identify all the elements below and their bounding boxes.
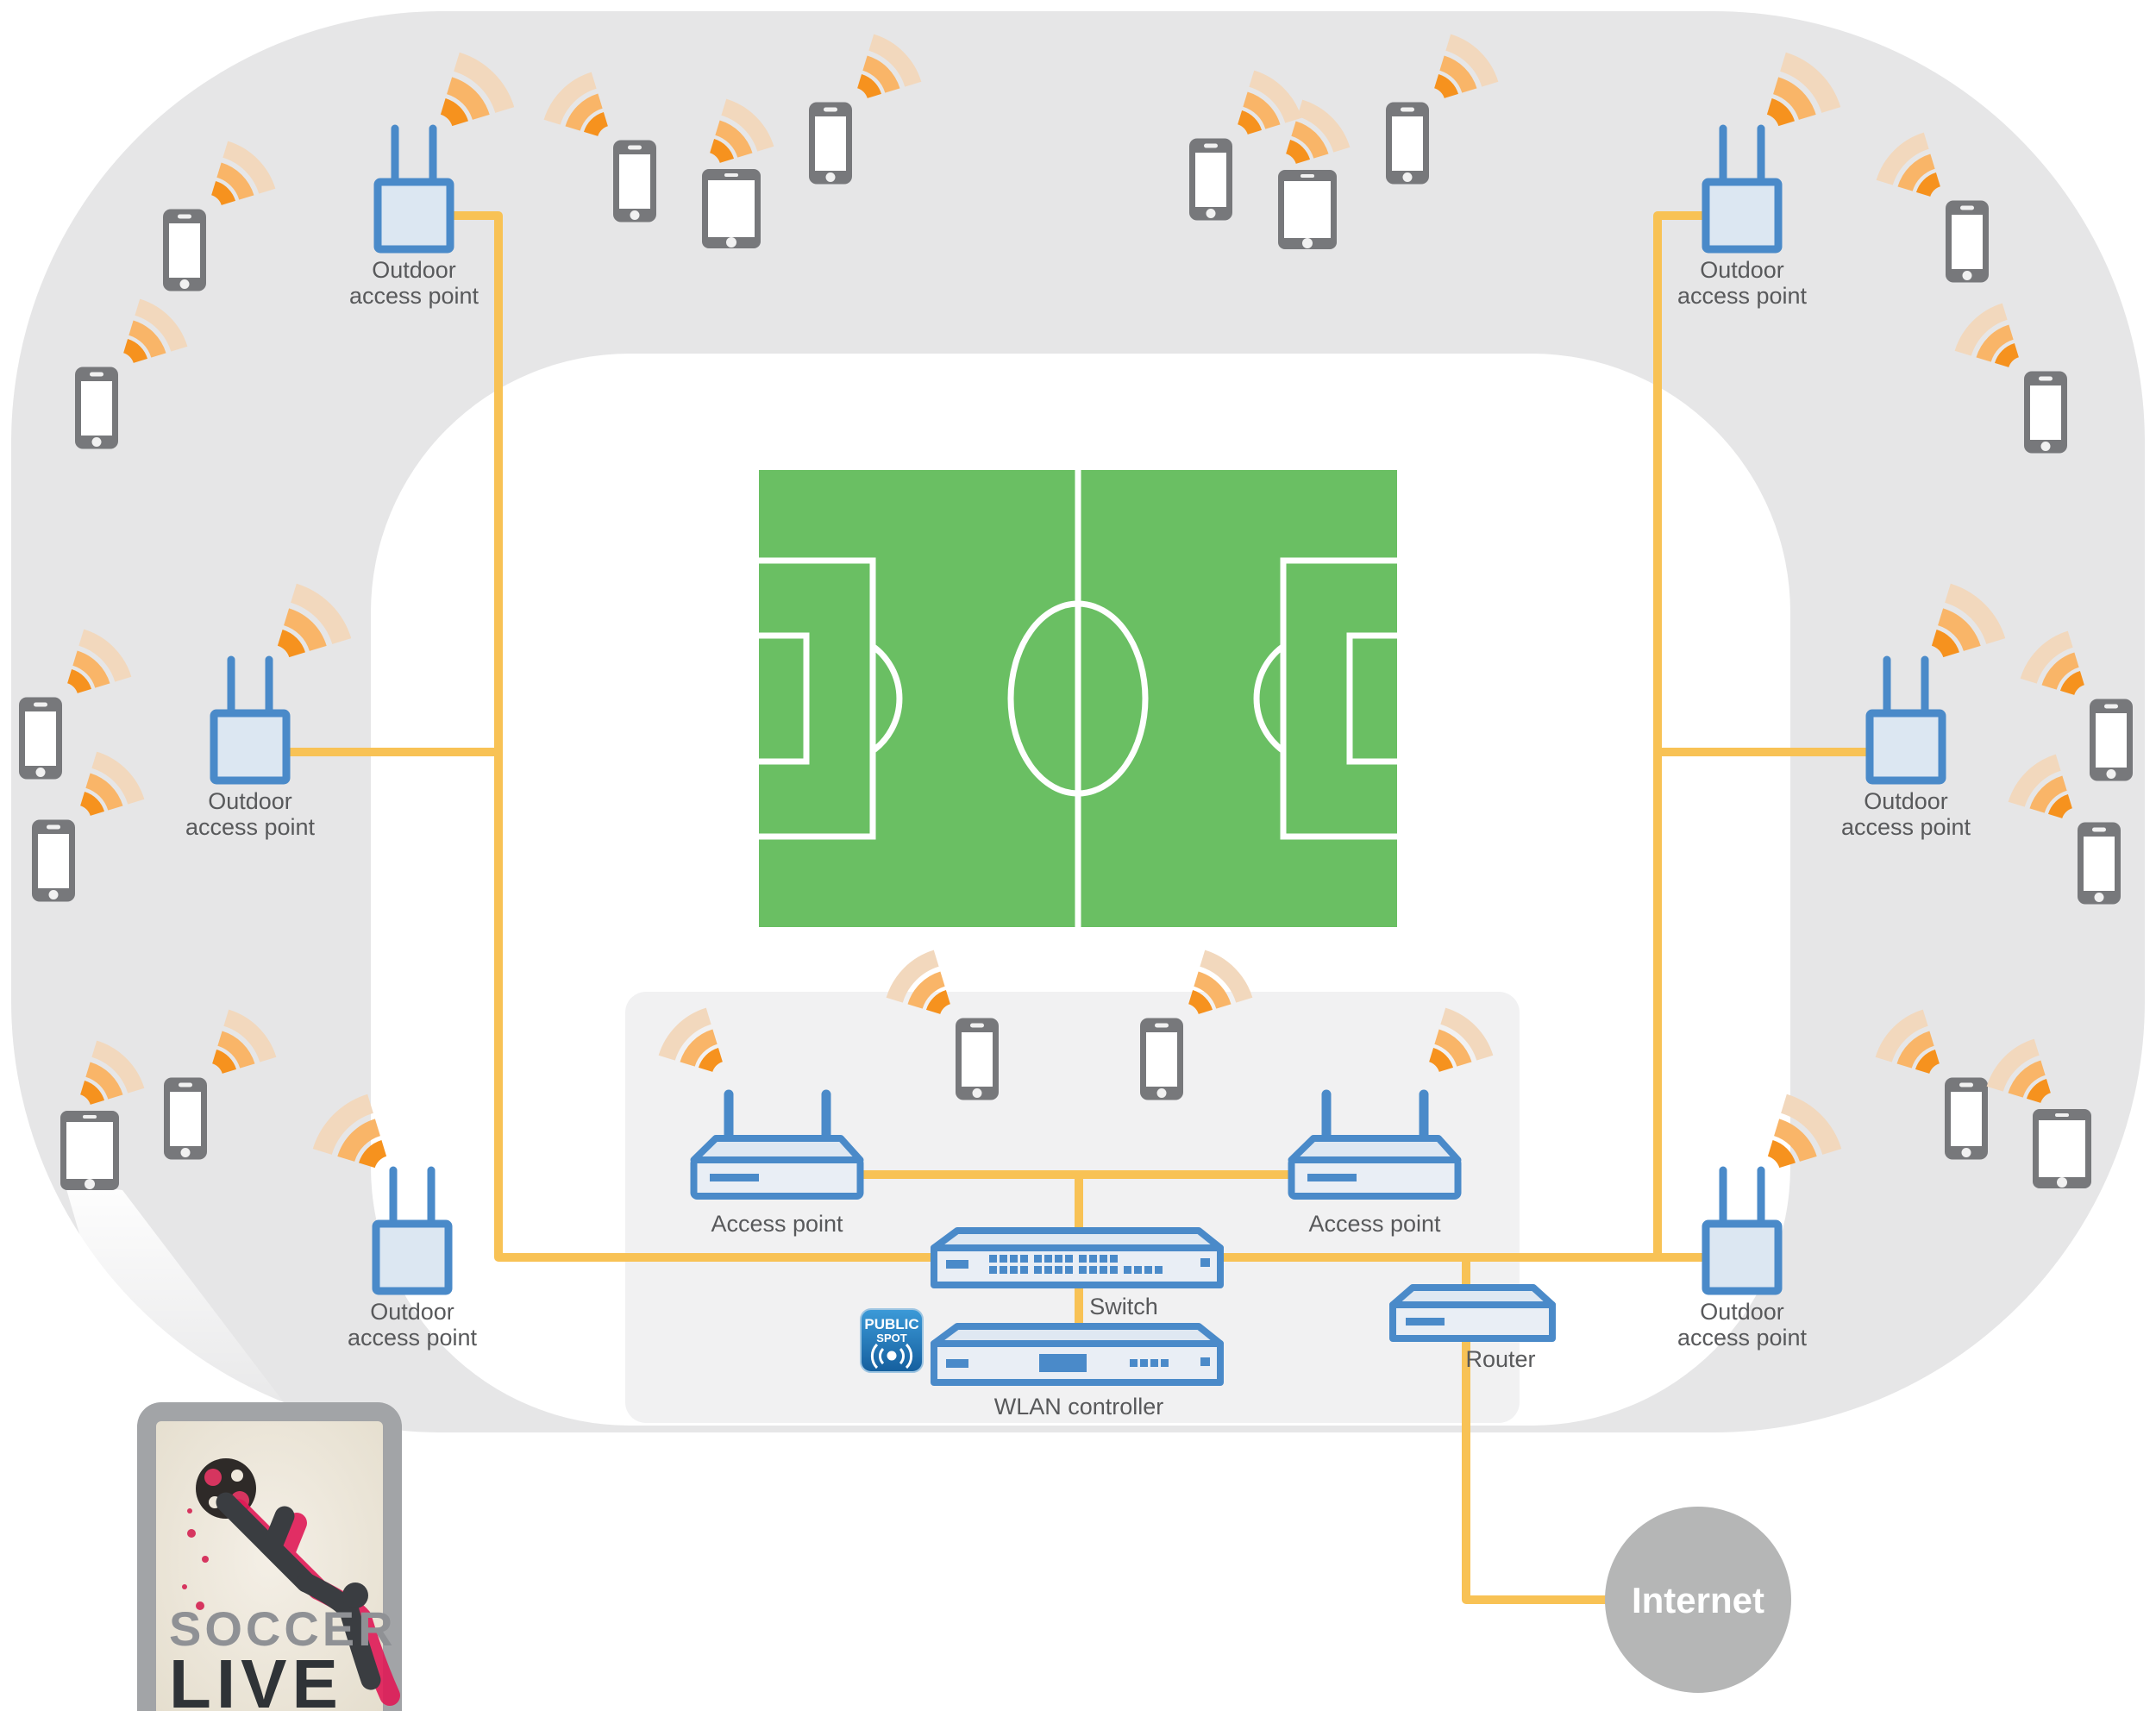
- router-device: [1393, 1288, 1552, 1338]
- outdoor-ap-label: access point: [1677, 1325, 1808, 1351]
- poster-title-live: LIVE: [169, 1645, 343, 1711]
- access-point-right-label: Access point: [1308, 1211, 1441, 1237]
- phone-icon: [163, 210, 206, 291]
- soccer-field: [759, 470, 1397, 927]
- phone-icon: [75, 367, 118, 449]
- access-point-left-label: Access point: [711, 1211, 843, 1237]
- outdoor-ap-label: Outdoor: [1700, 1299, 1784, 1325]
- stadium-wifi-diagram: Switch WLAN controller PUBLIC SPOT Route…: [0, 0, 2156, 1711]
- phone-icon: [956, 1018, 999, 1100]
- phone-icon: [2024, 372, 2067, 454]
- outdoor-ap-label: Outdoor: [372, 257, 456, 283]
- public-spot-line1: PUBLIC: [864, 1316, 918, 1332]
- phone-icon: [809, 103, 852, 185]
- phone-icon: [1386, 103, 1429, 185]
- outdoor-ap-label: access point: [349, 283, 479, 309]
- phone-icon: [1140, 1018, 1183, 1100]
- outdoor-ap-label: Outdoor: [208, 788, 292, 814]
- outdoor-ap-label: access point: [1841, 814, 1971, 840]
- phone-icon: [32, 820, 75, 902]
- phone-icon: [2078, 823, 2121, 905]
- outdoor-ap-label: access point: [348, 1325, 478, 1351]
- phone-icon: [2090, 699, 2133, 781]
- wlan-controller-label: WLAN controller: [994, 1394, 1164, 1420]
- internet-label: Internet: [1632, 1580, 1764, 1620]
- phone-icon: [164, 1078, 207, 1160]
- phone-icon: [1946, 201, 1989, 283]
- public-spot-line2: SPOT: [876, 1332, 906, 1344]
- phone-icon: [1189, 139, 1232, 221]
- outdoor-ap-label: access point: [1677, 283, 1808, 309]
- tablet-icon: [702, 169, 761, 248]
- tablet-icon: [60, 1111, 119, 1190]
- phone-icon: [19, 698, 62, 780]
- internet-node: Internet: [1605, 1507, 1791, 1693]
- outdoor-ap-label: Outdoor: [1864, 788, 1948, 814]
- outdoor-ap-label: Outdoor: [370, 1299, 454, 1325]
- tablet-icon: [1278, 170, 1337, 249]
- tablet-icon: [2033, 1109, 2091, 1188]
- phone-icon: [613, 141, 656, 222]
- outdoor-ap-label: access point: [185, 814, 316, 840]
- outdoor-ap-label: Outdoor: [1700, 257, 1784, 283]
- soccer-live-poster: SOCCER LIVE: [137, 1402, 402, 1711]
- public-spot-badge: PUBLIC SPOT: [861, 1309, 923, 1372]
- switch-label: Switch: [1089, 1294, 1158, 1319]
- wlan-controller-device: [934, 1326, 1220, 1382]
- switch-device: [934, 1231, 1220, 1285]
- router-label: Router: [1465, 1346, 1535, 1372]
- phone-icon: [1945, 1078, 1988, 1160]
